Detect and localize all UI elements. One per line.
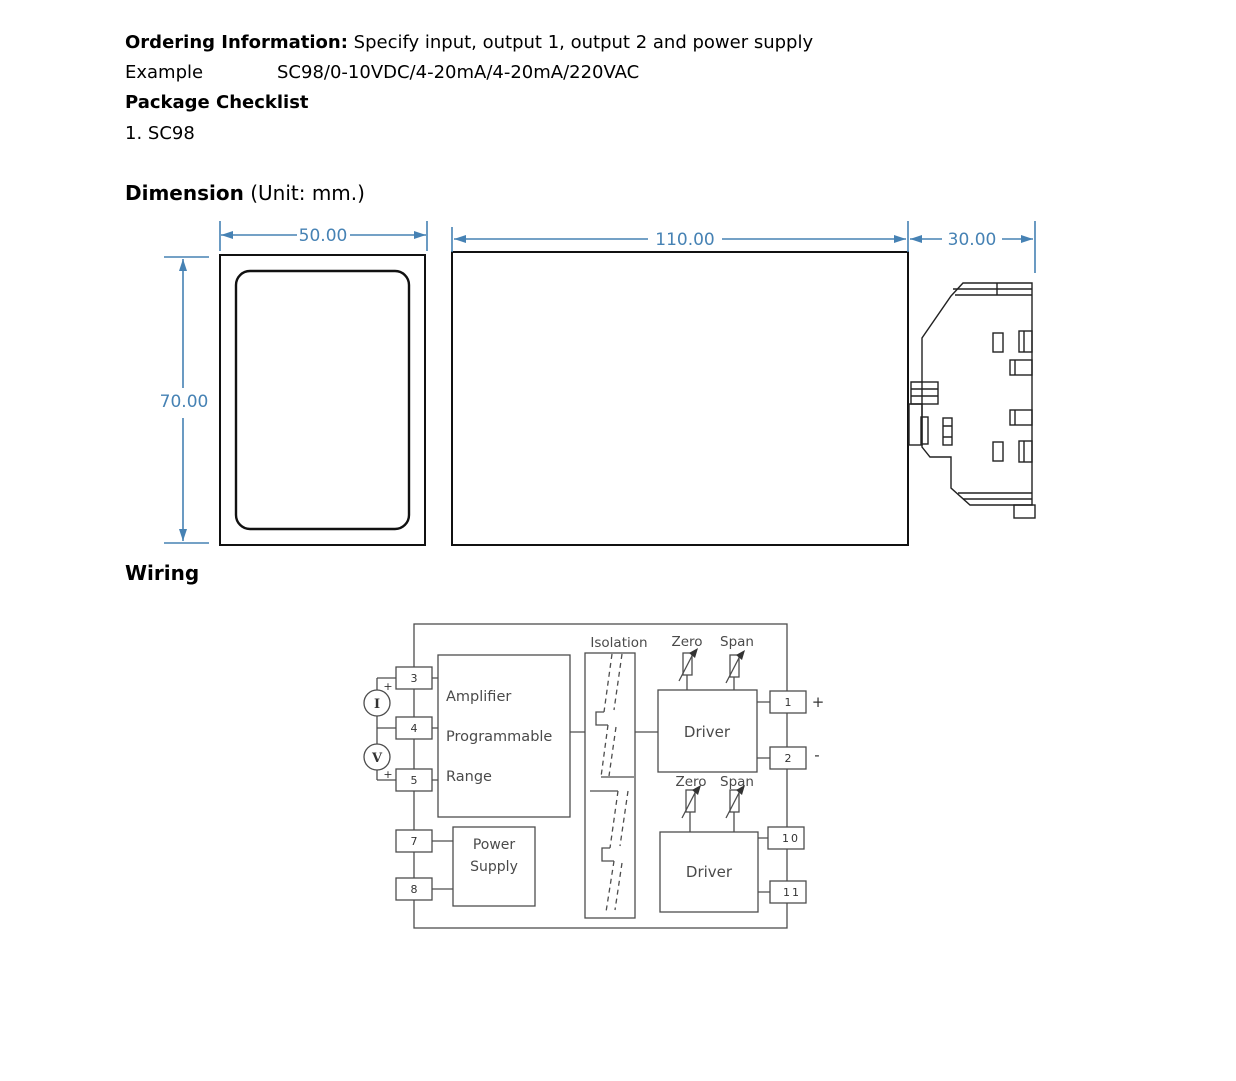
output1-polarity: +	[812, 693, 825, 711]
isolation-label: Isolation	[590, 635, 647, 651]
datasheet-page: Ordering Information: Specify input, out…	[0, 0, 1236, 1081]
terminal-5-label: 5	[411, 774, 418, 787]
zero-label-output1: Zero	[671, 634, 702, 650]
input-plus-bottom: +	[383, 768, 392, 781]
driver2-label: Driver	[686, 863, 733, 881]
dimension-heading-unit: (Unit: mm.)	[244, 181, 365, 205]
wires	[377, 675, 770, 892]
dim-front-height-value: 70.00	[160, 392, 209, 412]
dim-body-length-value: 110.00	[655, 230, 714, 250]
amplifier-label-line3: Range	[446, 769, 492, 785]
amplifier-label-line2: Programmable	[446, 729, 552, 745]
front-view-outline	[220, 255, 425, 545]
package-checklist-heading: Package Checklist	[125, 92, 309, 114]
terminal-7-label: 7	[411, 835, 418, 848]
dim-side-depth-value: 30.00	[948, 230, 997, 250]
side-profile-drawing	[909, 283, 1035, 518]
isolation-bolt-upper	[596, 654, 634, 777]
dimension-heading-bold: Dimension	[125, 181, 244, 205]
isolation-bolt-lower	[590, 791, 628, 912]
input-plus-top: +	[383, 680, 392, 693]
dim-front-width-value: 50.00	[299, 226, 348, 246]
terminal-11-label: 11	[783, 886, 801, 899]
driver1-label: Driver	[684, 723, 731, 741]
dimension-drawing: 50.00 110.00 30.00 70.00	[150, 215, 1045, 555]
dim-body-length: 110.00	[452, 221, 908, 252]
terminal-1-label: 1	[785, 696, 792, 709]
ordering-information-line: Ordering Information: Specify input, out…	[125, 32, 813, 54]
span-label-output1: Span	[720, 634, 754, 650]
dimension-heading: Dimension (Unit: mm.)	[125, 181, 365, 205]
dim-front-height: 70.00	[160, 257, 209, 543]
terminal-8-label: 8	[411, 883, 418, 896]
ordering-information-text: Specify input, output 1, output 2 and po…	[348, 32, 813, 53]
power-supply-label-line1: Power	[473, 837, 516, 853]
current-source-label: I	[374, 697, 380, 712]
span-pot-output1	[726, 650, 745, 683]
span-label-output2: Span	[720, 774, 754, 790]
amplifier-label-line1: Amplifier	[446, 689, 511, 705]
zero-label-output2: Zero	[675, 774, 706, 790]
output2-polarity: -	[814, 746, 819, 764]
wiring-heading: Wiring	[125, 561, 199, 585]
body-view-outline	[452, 252, 908, 545]
terminal-4-label: 4	[411, 722, 418, 735]
power-supply-label-line2: Supply	[470, 859, 518, 875]
example-value: SC98/0-10VDC/4-20mA/4-20mA/220VAC	[277, 62, 639, 84]
example-label: Example	[125, 62, 203, 84]
terminal-3-label: 3	[411, 672, 418, 685]
voltage-source-label: V	[371, 751, 383, 766]
dim-front-width: 50.00	[220, 221, 427, 251]
terminal-2-label: 2	[785, 752, 792, 765]
isolation-barrier	[585, 653, 635, 918]
dim-side-depth: 30.00	[910, 221, 1035, 273]
zero-pot-output1	[679, 648, 698, 681]
ordering-information-label: Ordering Information:	[125, 32, 348, 53]
terminal-10-label: 10	[782, 832, 800, 845]
package-checklist-item: 1. SC98	[125, 123, 195, 145]
wiring-diagram: I V + + 3 4 5 7 8 1 2 10 11 + -	[355, 615, 825, 940]
